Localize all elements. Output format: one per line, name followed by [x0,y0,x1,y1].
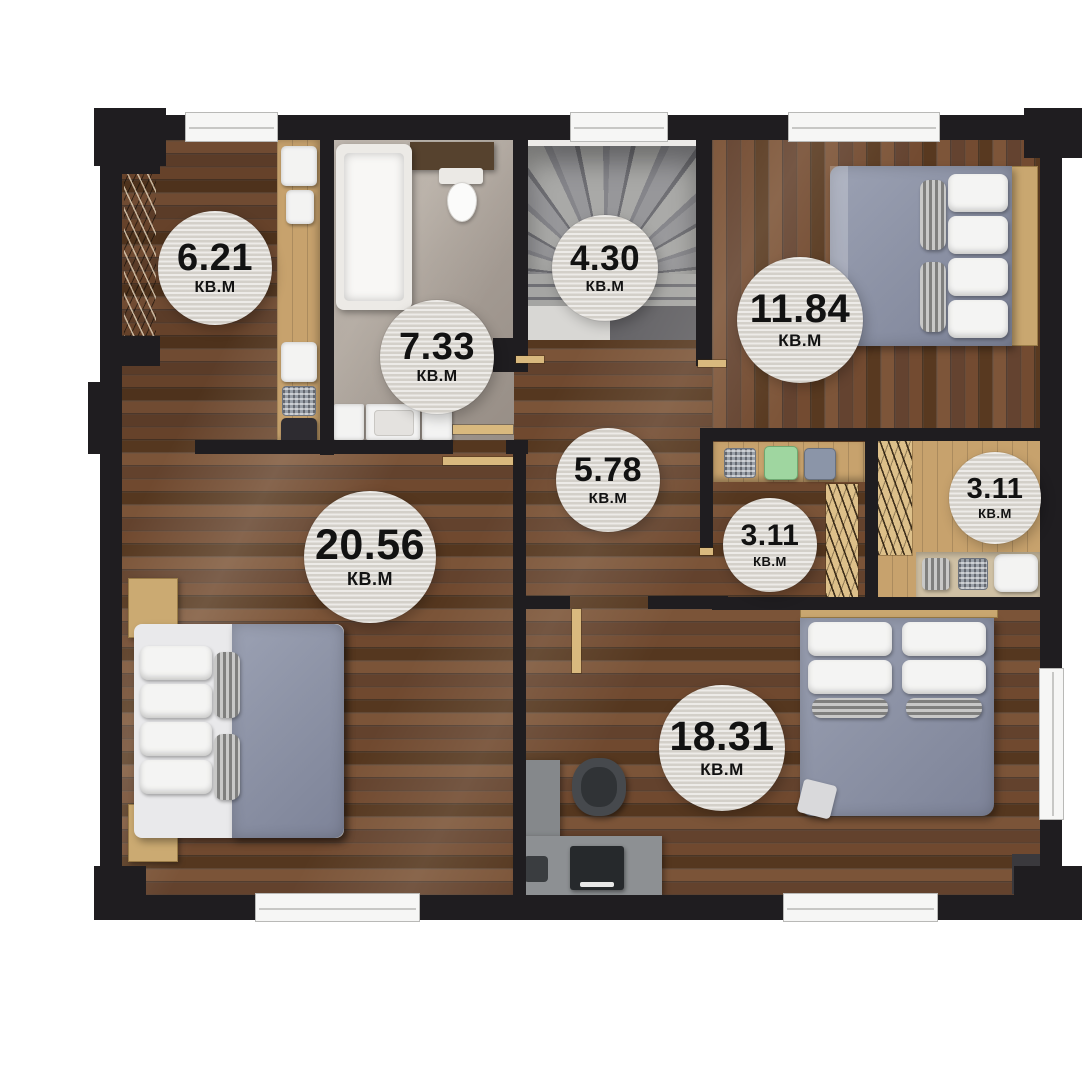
office-chair [572,758,626,816]
storage-basket [282,386,316,416]
area-value: 3.11 [967,475,1024,505]
storage-box [281,342,317,382]
pilaster [88,382,102,454]
area-label-bathroom: 7.33 КВ.М [380,300,494,414]
knit-pillow-roll [920,262,946,332]
corner-pier [1024,108,1082,158]
wall-closet-left [700,428,713,548]
area-label-bedroom-left: 20.56 КВ.М [304,491,436,623]
monitor [570,846,624,890]
wall-stairwell-left [513,140,528,366]
pilaster [122,140,160,174]
wall-closet-top [712,428,1040,441]
pillow [140,760,212,794]
folded-clothes [724,448,756,478]
area-label-bedroom-top-right: 11.84 КВ.М [737,257,863,383]
pillow [948,174,1008,212]
window [570,112,668,142]
bed-headboard [1010,166,1038,346]
bathtub-basin [344,153,404,301]
stairs-door-jamb [698,360,726,367]
floor-plan: 6.21 КВ.М 7.33 КВ.М 4.30 КВ.М 11.84 КВ.М… [0,0,1082,1080]
desk-accessory [524,856,548,882]
bedroom-left-door [443,457,513,465]
folded-clothes-green [764,446,798,480]
window [788,112,940,142]
monitor-stand [580,882,614,887]
pillow [140,722,212,756]
area-value: 11.84 [750,289,850,330]
stairs-door-jamb [516,356,544,363]
pillow [902,660,986,694]
area-unit: КВ.М [586,278,625,295]
area-unit: КВ.М [700,760,744,780]
wall-below-bathroom [506,440,528,454]
area-unit: КВ.М [194,279,235,297]
bedroom-bottom-right-door [572,609,581,673]
pilaster [493,338,528,372]
area-value: 4.30 [570,241,640,277]
pillow [948,258,1008,296]
pillow [808,660,892,694]
window [783,893,938,922]
pillow [808,622,892,656]
area-value: 6.21 [177,239,253,278]
storage-basket [922,558,950,590]
pilaster [122,336,160,366]
folded-clothes-gray [804,448,836,480]
window [255,893,420,922]
corner-pier [94,866,146,920]
knit-pillow-roll [920,180,946,250]
area-label-closet-right: 3.11 КВ.М [949,452,1041,544]
wall-dressing-bathroom [320,140,334,455]
area-label-bedroom-bottom-right: 18.31 КВ.М [659,685,785,811]
bed-blanket [232,624,344,838]
sink-cabinet [334,404,364,440]
pillow [140,684,212,718]
wall-below-dressing [195,440,453,454]
area-label-closet-left: 3.11 КВ.М [723,498,817,592]
sink-basin-unit [366,404,420,440]
knit-pillow-roll [214,734,240,800]
pillow [140,646,212,680]
chair-seat [581,767,617,807]
knit-pillow-roll [214,652,240,718]
area-value: 7.33 [399,328,475,367]
pillow [902,622,986,656]
folded-towels [994,554,1038,592]
window [185,112,278,142]
corner-pier [1014,866,1082,920]
area-unit: КВ.М [978,506,1012,521]
area-value: 18.31 [669,716,774,758]
area-unit: КВ.М [416,368,457,386]
bathroom-counter [410,142,494,170]
area-label-hallway: 5.78 КВ.М [556,428,660,532]
area-unit: КВ.М [347,569,393,590]
pillow [948,300,1008,338]
storage-box [281,146,317,186]
pillow [948,216,1008,254]
closet-door-jamb [700,548,713,555]
hanger-rail [878,441,912,555]
hanger-rail [826,484,858,597]
sink-basin [374,410,414,436]
knit-pillow-roll [812,698,888,718]
bathroom-door [453,425,513,434]
area-label-dressing-room: 6.21 КВ.М [158,211,272,325]
wall-bedroom-left-divider [513,454,526,895]
knit-pillow-roll [906,698,982,718]
area-unit: КВ.М [778,331,822,351]
wall-closet-bottom [712,597,1040,610]
area-unit: КВ.М [589,490,628,507]
area-value: 3.11 [741,521,800,552]
area-value: 20.56 [315,524,425,568]
wall-bedroom-bottom-top1 [526,596,570,609]
area-value: 5.78 [574,453,642,488]
wall-left [100,115,122,920]
storage-basket [958,558,988,590]
area-unit: КВ.М [753,554,787,569]
area-label-staircase: 4.30 КВ.М [552,215,658,321]
window [1039,668,1064,820]
storage-box [286,190,314,224]
hanger-rail-marks [124,166,156,338]
bathtub [336,144,412,310]
wall-closet-divider [865,441,878,599]
wall-stairwell-right [696,140,712,366]
